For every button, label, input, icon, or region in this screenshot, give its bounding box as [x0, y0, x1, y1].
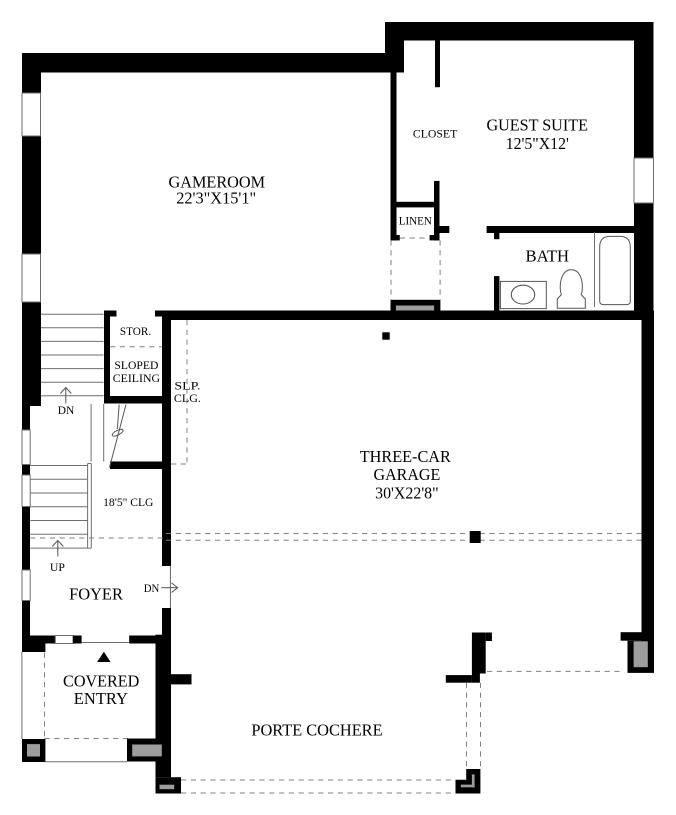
svg-text:18'5" CLG: 18'5" CLG	[103, 496, 154, 509]
svg-text:CLOSET: CLOSET	[413, 128, 457, 141]
svg-text:DN: DN	[58, 404, 75, 417]
svg-text:COVERED: COVERED	[63, 671, 139, 690]
svg-text:LINEN: LINEN	[399, 215, 433, 228]
svg-text:22'3"X15'1": 22'3"X15'1"	[176, 189, 256, 208]
svg-text:DN: DN	[144, 582, 160, 595]
svg-text:STOR.: STOR.	[120, 325, 151, 338]
svg-text:UP: UP	[50, 561, 65, 574]
svg-text:12'5"X12': 12'5"X12'	[506, 134, 569, 153]
svg-text:CLG.: CLG.	[174, 392, 201, 405]
svg-text:GUEST SUITE: GUEST SUITE	[486, 116, 588, 135]
svg-text:SLOPED: SLOPED	[114, 359, 158, 372]
svg-text:BATH: BATH	[526, 246, 570, 265]
svg-text:30'X22'8": 30'X22'8"	[375, 484, 439, 503]
svg-text:SLP.: SLP.	[174, 380, 200, 393]
svg-text:FOYER: FOYER	[69, 585, 123, 604]
svg-text:PORTE COCHERE: PORTE COCHERE	[251, 720, 382, 739]
svg-text:CEILING: CEILING	[113, 372, 161, 385]
svg-text:ENTRY: ENTRY	[74, 689, 128, 708]
svg-text:GARAGE: GARAGE	[374, 465, 441, 484]
svg-text:THREE-CAR: THREE-CAR	[360, 447, 451, 466]
